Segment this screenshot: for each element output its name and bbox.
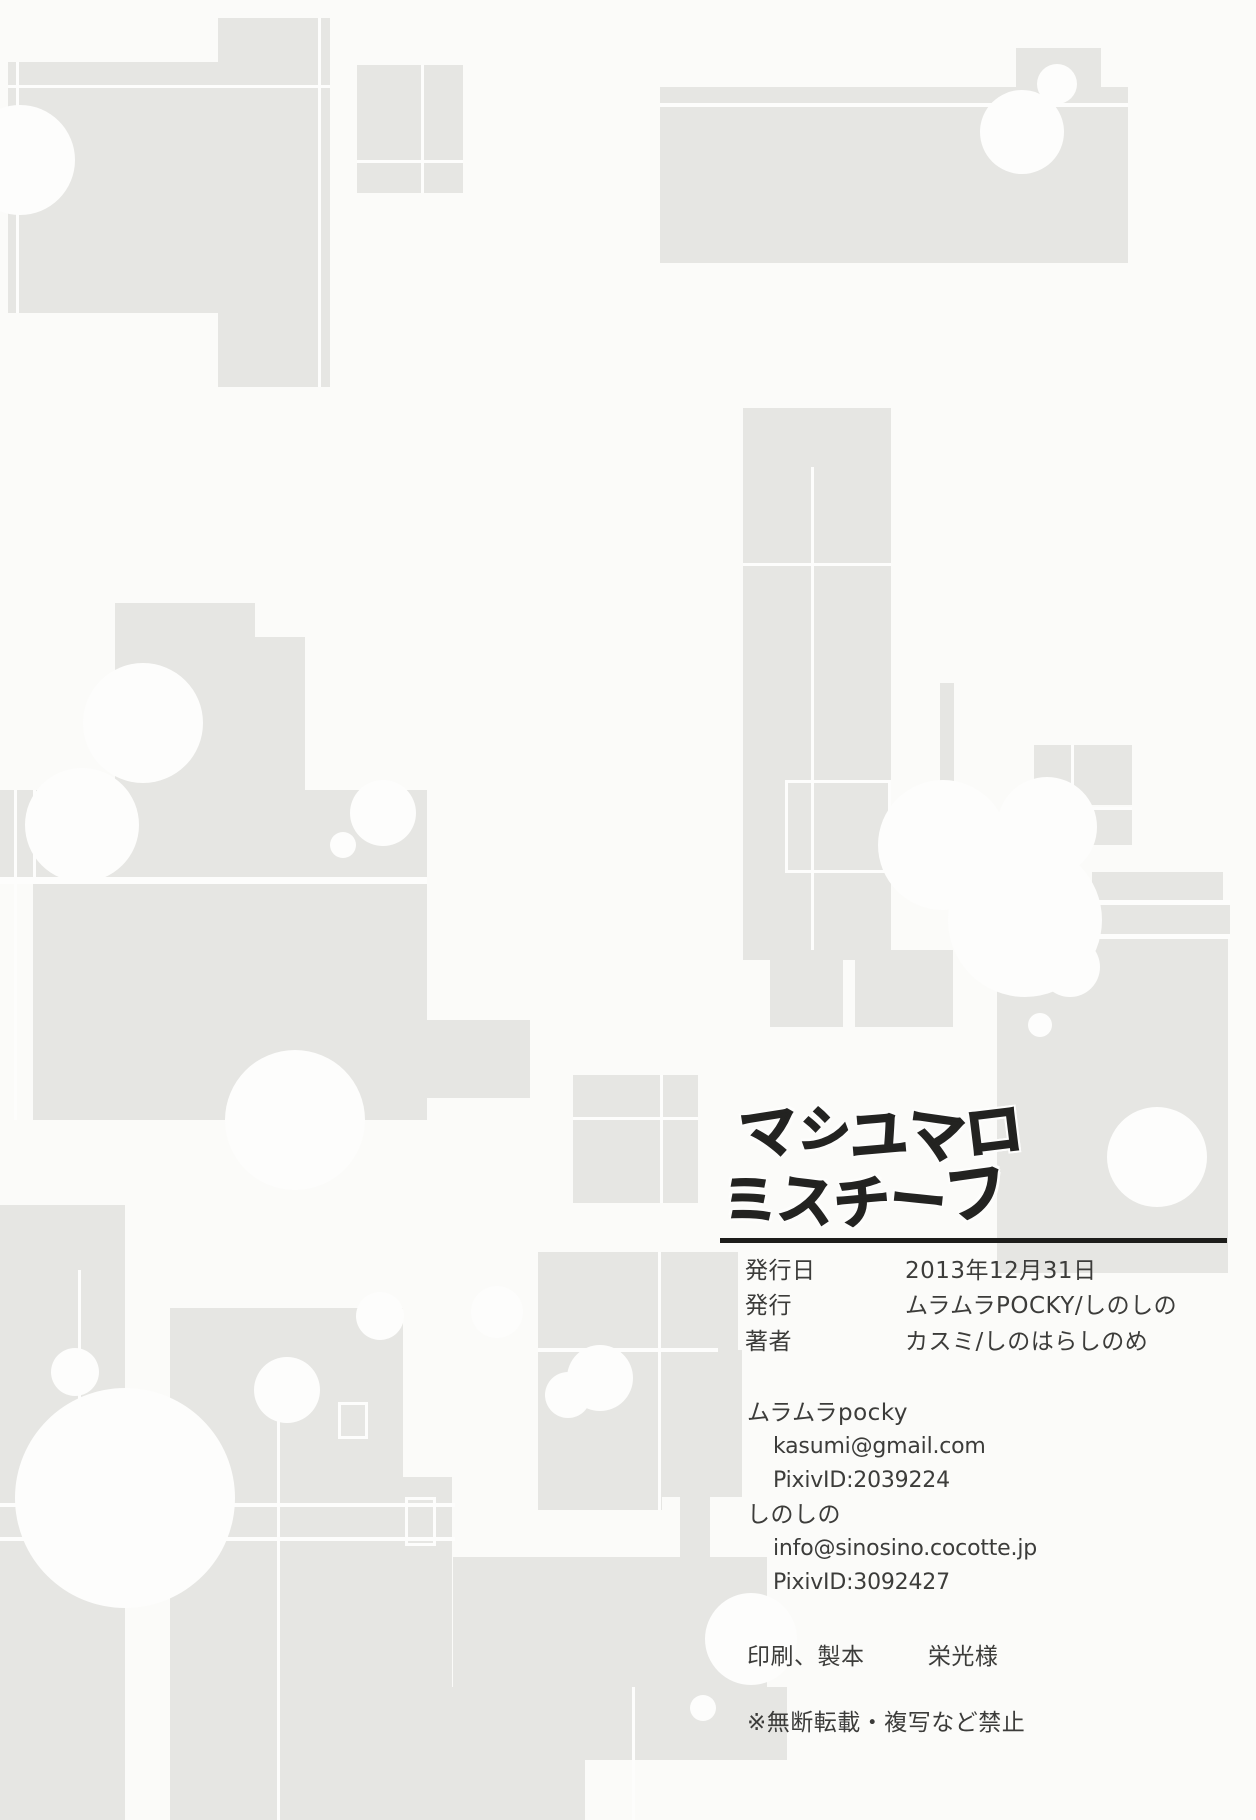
author-value: カスミ/しのはらしのめ	[905, 1325, 1148, 1359]
contact-email: kasumi@gmail.com	[747, 1430, 1037, 1464]
author-label: 著者	[745, 1325, 905, 1359]
bg-rect	[662, 1350, 742, 1497]
printer-label: 印刷、製本	[747, 1640, 920, 1674]
bg-white-circle	[254, 1357, 320, 1423]
bg-white-circle	[1037, 64, 1077, 104]
bg-white-line	[632, 1687, 635, 1820]
bg-white-circle	[1107, 1107, 1207, 1207]
bg-white-outline	[405, 1497, 436, 1546]
bg-white-line	[8, 85, 330, 88]
bg-rect	[573, 1075, 698, 1203]
bg-rect	[357, 65, 463, 193]
bg-white-line	[1092, 900, 1230, 905]
title-logo-line1: マシユマロ	[740, 1104, 1023, 1162]
bg-white-circle	[83, 663, 203, 783]
bg-white-line	[538, 1348, 718, 1352]
bg-white-circle	[25, 768, 139, 882]
contact-name: しのしの	[747, 1498, 1037, 1532]
printer-credit: 印刷、製本 栄光様	[747, 1640, 998, 1674]
bg-white-circle	[356, 1292, 404, 1340]
bg-rect	[538, 1252, 738, 1350]
logo-char: ユ	[847, 1104, 910, 1167]
contact-list: ムラムラpocky kasumi@gmail.com PixivID:20392…	[747, 1396, 1037, 1600]
bg-white-line	[658, 1252, 661, 1510]
pub-date-value: 2013年12月31日	[905, 1254, 1097, 1288]
bg-rect	[680, 1497, 710, 1557]
logo-char: ス	[775, 1171, 837, 1233]
bg-rect	[427, 1020, 530, 1098]
bg-white-line	[14, 790, 17, 1120]
bg-white-circle	[690, 1695, 716, 1721]
title-underline	[720, 1238, 1227, 1243]
contact-pixiv-id: PixivID:3092427	[747, 1566, 1037, 1600]
reproduction-notice: ※無断転載・複写など禁止	[747, 1706, 1025, 1740]
contact-pixiv-id: PixivID:2039224	[747, 1464, 1037, 1498]
bg-rect	[218, 18, 330, 387]
bg-white-circle	[545, 1372, 591, 1418]
logo-char: チ	[832, 1174, 893, 1235]
publication-row: 著者 カスミ/しのはらしのめ	[745, 1324, 1177, 1360]
publisher-label: 発行	[745, 1289, 905, 1323]
contact-name: ムラムラpocky	[747, 1396, 1037, 1430]
bg-white-outline	[338, 1402, 368, 1439]
publication-row: 発行日 2013年12月31日	[745, 1253, 1177, 1289]
publication-info: 発行日 2013年12月31日 発行 ムラムラPOCKY/しのしの 著者 カスミ…	[745, 1253, 1177, 1360]
bg-white-circle	[1040, 937, 1100, 997]
colophon-page: マシユマロ ミスチーフ 発行日 2013年12月31日 発行 ムラムラPOCKY…	[0, 0, 1256, 1820]
bg-white-line	[421, 65, 424, 193]
bg-white-circle	[350, 780, 416, 846]
bg-white-line	[660, 1075, 663, 1203]
printer-value: 栄光様	[928, 1644, 999, 1670]
bg-white-line	[743, 563, 891, 566]
bg-white-circle	[471, 1286, 523, 1338]
bg-rect	[1092, 905, 1230, 937]
bg-rect	[452, 1760, 585, 1820]
bg-white-line	[277, 1390, 280, 1820]
logo-char: シ	[795, 1103, 854, 1162]
bg-white-line	[573, 1117, 698, 1120]
publication-row: 発行 ムラムラPOCKY/しのしの	[745, 1289, 1177, 1325]
logo-char: ー	[887, 1171, 949, 1233]
bg-rect	[770, 950, 843, 1027]
bg-rect	[452, 1687, 787, 1760]
title-logo-line2: ミスチーフ	[722, 1168, 1009, 1231]
bg-white-outline	[785, 780, 891, 873]
bg-rect	[1092, 872, 1223, 902]
contact-email: info@sinosino.cocotte.jp	[747, 1532, 1037, 1566]
bg-white-line	[318, 18, 321, 387]
bg-white-circle	[51, 1348, 99, 1396]
bg-white-circle	[225, 1050, 365, 1190]
pub-date-label: 発行日	[745, 1254, 905, 1288]
bg-rect	[33, 884, 427, 1120]
bg-white-circle	[330, 832, 356, 858]
bg-white-circle	[1028, 1013, 1052, 1037]
logo-char: マ	[736, 1100, 802, 1166]
bg-white-line	[357, 160, 463, 163]
bg-white-circle	[15, 1388, 235, 1608]
logo-char: フ	[941, 1159, 1012, 1230]
publisher-value: ムラムラPOCKY/しのしの	[905, 1289, 1177, 1323]
bg-rect	[855, 950, 953, 1027]
bg-rect	[743, 408, 891, 960]
bg-white-line	[811, 467, 814, 950]
logo-char: ミ	[717, 1169, 783, 1235]
